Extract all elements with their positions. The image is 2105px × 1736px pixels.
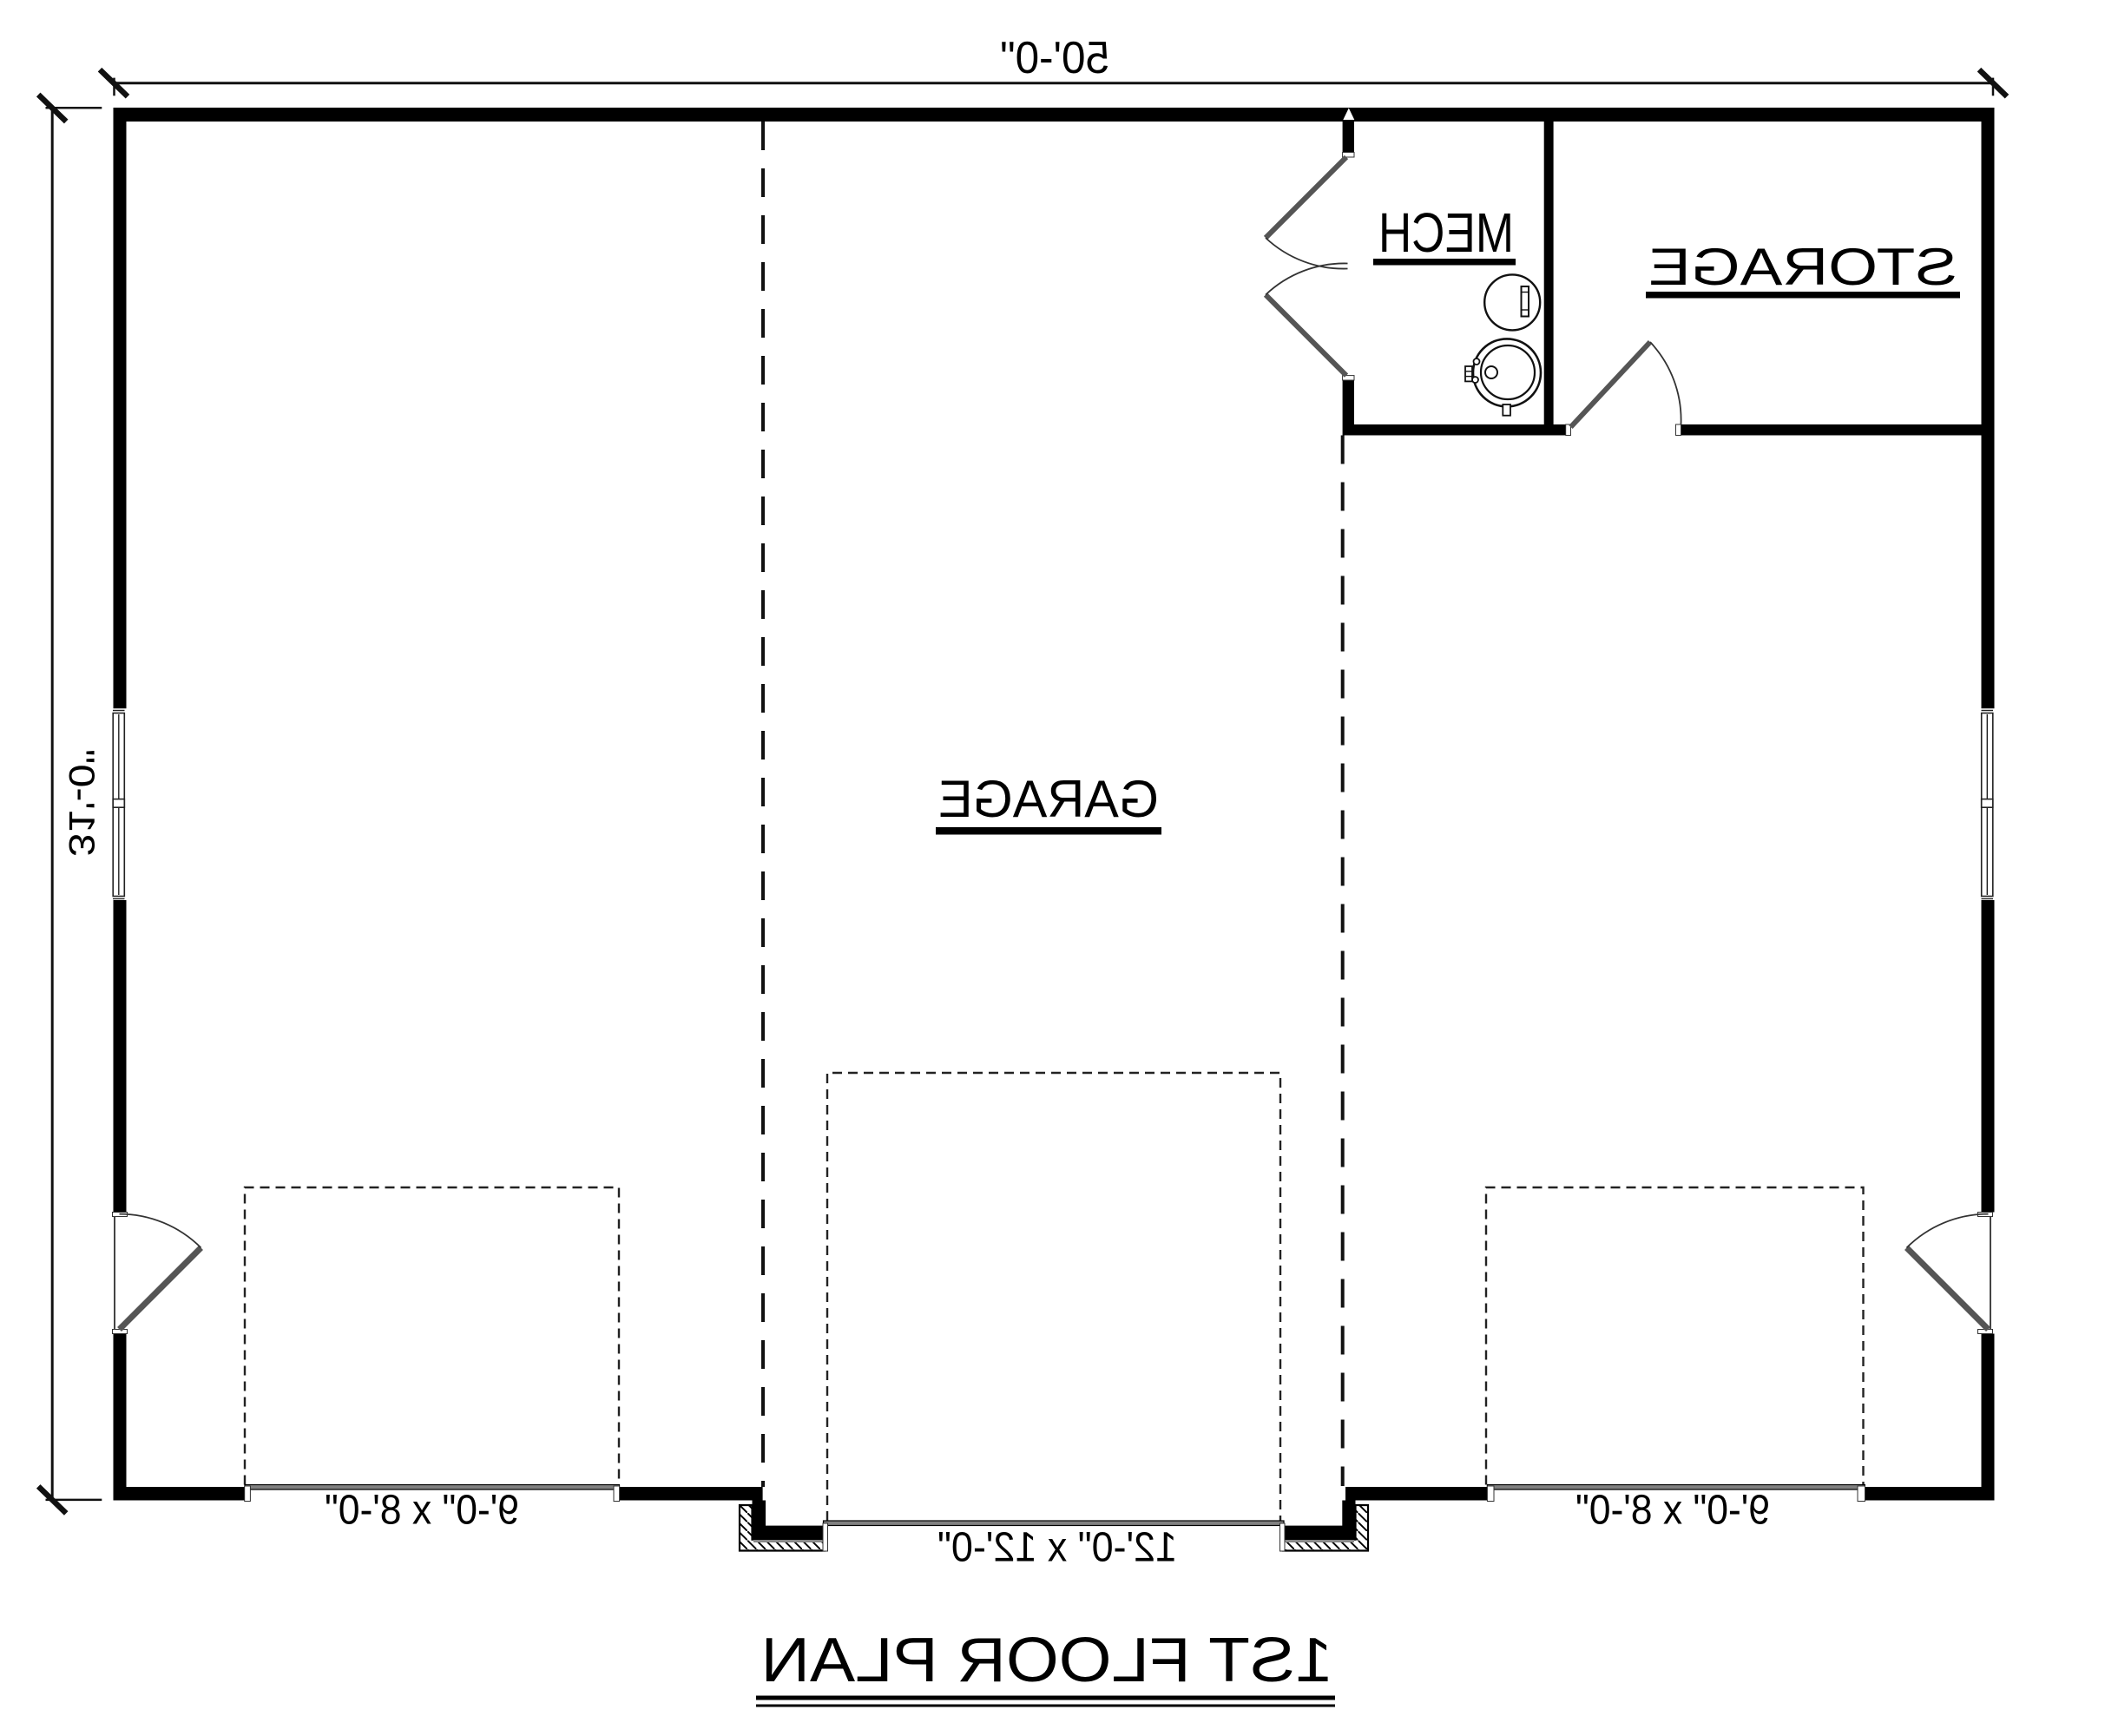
svg-text:9'-0" x 8'-0": 9'-0" x 8'-0" [325, 1488, 519, 1534]
svg-text:1ST FLOOR PLAN: 1ST FLOOR PLAN [761, 1626, 1333, 1695]
svg-text:12'-0" x 12'-0": 12'-0" x 12'-0" [937, 1525, 1177, 1571]
svg-text:31'-0": 31'-0" [62, 749, 102, 857]
svg-text:MECH: MECH [1378, 201, 1514, 264]
svg-text:50'-0": 50'-0" [1000, 33, 1109, 83]
svg-text:STORAGE: STORAGE [1648, 238, 1957, 296]
svg-text:9'-0" x 8'-0": 9'-0" x 8'-0" [1575, 1488, 1770, 1534]
svg-text:GARAGE: GARAGE [938, 770, 1159, 828]
